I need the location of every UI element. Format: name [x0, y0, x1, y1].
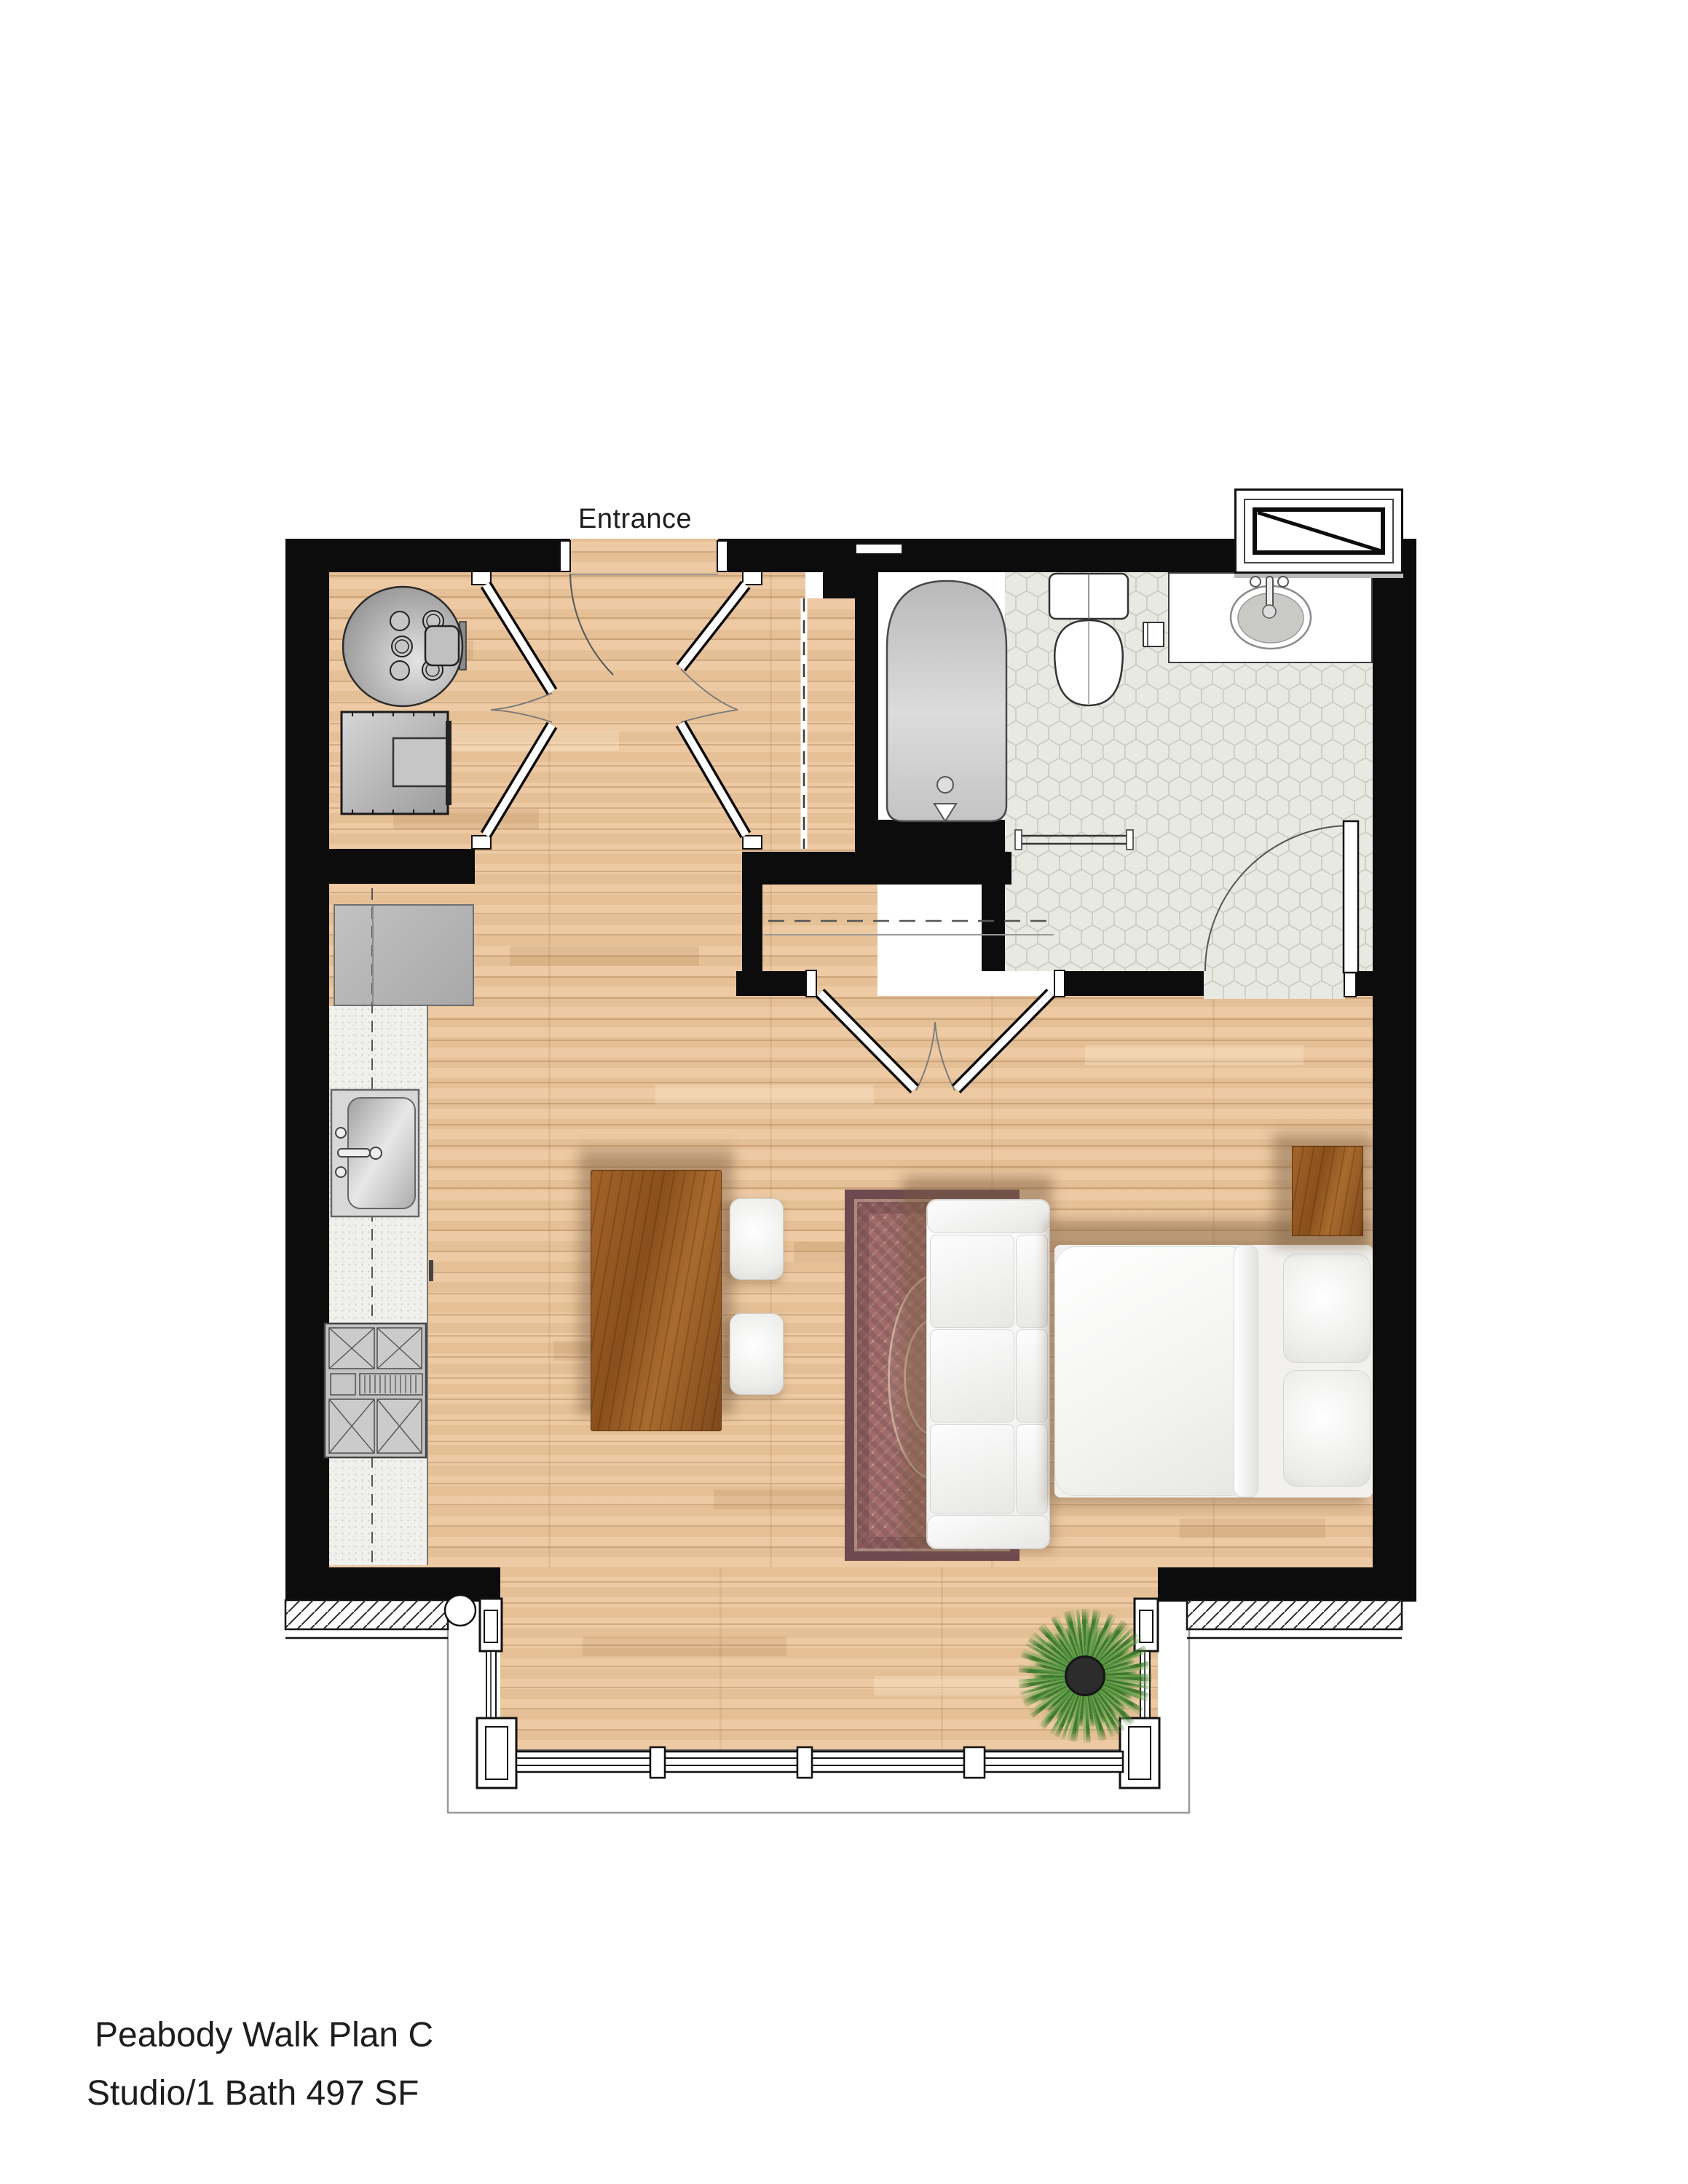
- plan-linework: [0, 0, 1688, 2184]
- vanity-sink: [1231, 577, 1311, 649]
- entry-door-swing: [570, 574, 613, 675]
- dining-chair: [425, 626, 459, 665]
- range: [325, 1324, 426, 1457]
- floor-plan-page: Entrance Peabody Walk Plan C Studio/1 Ba…: [0, 0, 1688, 2184]
- plan-title: Peabody Walk Plan C: [95, 2015, 433, 2055]
- towel-bar: [1015, 830, 1133, 850]
- dining-table: [343, 587, 466, 706]
- bay-front-windows: [516, 1752, 1123, 1772]
- entrance-label: Entrance: [578, 504, 692, 535]
- bathroom-door: [1205, 821, 1358, 973]
- nook-appliance: [342, 712, 451, 814]
- kitchen-sink: [331, 1090, 419, 1216]
- closet-double-doors: [820, 993, 1051, 1091]
- toilet: [1049, 574, 1128, 705]
- entry-closet-doors: [681, 585, 746, 835]
- plant-pot: [1065, 1655, 1105, 1696]
- exterior-sill-right: [1187, 1600, 1402, 1638]
- plan-subtitle: Studio/1 Bath 497 SF: [87, 2073, 419, 2113]
- toilet-paper-holder: [1143, 622, 1164, 646]
- transom-window-diagonal: [1258, 513, 1381, 551]
- nook-closet-doors: [486, 585, 552, 835]
- dishwasher-handle: [429, 1260, 433, 1281]
- closet-rod: [765, 921, 1054, 935]
- bathtub: [887, 581, 1006, 821]
- bay-column: [445, 1595, 476, 1626]
